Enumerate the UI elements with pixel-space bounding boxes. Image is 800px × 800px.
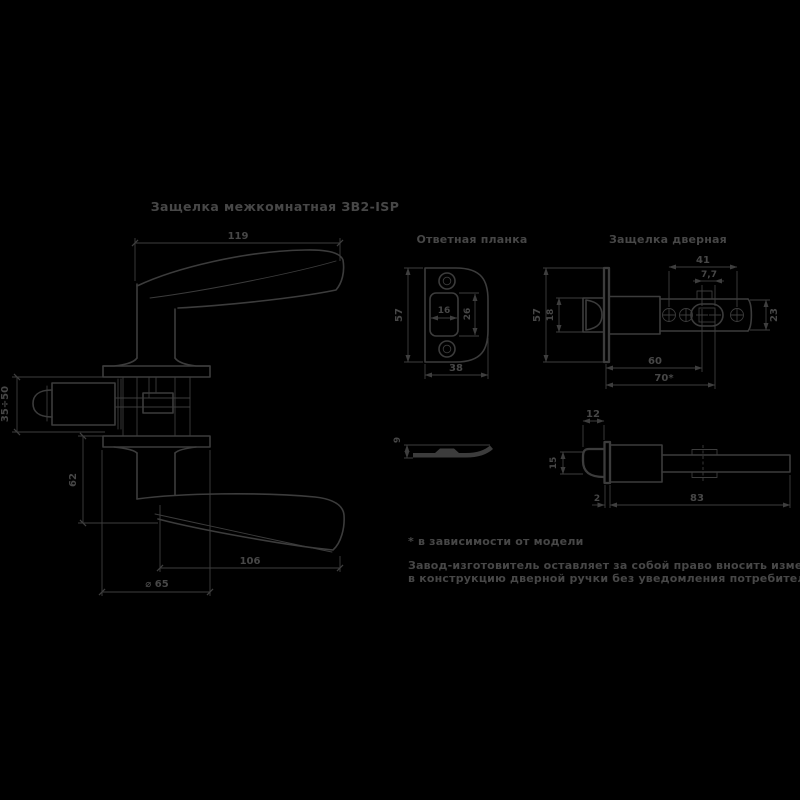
latch-front-view: 57 18 41 7,7 23: [532, 255, 780, 389]
dim-strike-38-label: 38: [449, 363, 463, 374]
dim-backset-60-label: 60: [648, 356, 662, 367]
strike-plate-side-view: 9: [393, 437, 493, 458]
dim-bolt-15-label: 15: [549, 457, 559, 470]
dim-strike-38: 38: [425, 338, 488, 379]
dim-length-83: 83: [610, 475, 790, 508]
dim-backset-label: 35÷50: [0, 386, 11, 422]
dim-backset-70-label: 70*: [654, 373, 674, 384]
footnote: * в зависимости от модели: [408, 535, 583, 548]
dim-throw-12-label: 12: [586, 409, 600, 420]
handle-side-view: 119 35÷50 62 106 ⌀ 65: [0, 231, 344, 596]
disclaimer-line2: в конструкцию дверной ручки без уведомле…: [408, 572, 800, 585]
dim-length-83-label: 83: [690, 493, 704, 504]
strike-plate-label: Ответная планка: [416, 233, 527, 246]
latch-label: Защелка дверная: [609, 233, 727, 246]
dim-106-label: 106: [240, 556, 261, 567]
dim-gap-77: 7,7: [693, 270, 724, 306]
dim-slot-26: 26: [459, 293, 479, 336]
dim-plate-2: 2: [592, 485, 610, 508]
dim-tube-23: 23: [750, 300, 780, 330]
dim-strike-57-label: 57: [394, 308, 405, 322]
dim-slot-26-label: 26: [463, 308, 473, 321]
dim-strike-57: 57: [394, 268, 423, 362]
dim-plate-2-label: 2: [594, 494, 600, 504]
dim-strike-9-label: 9: [393, 437, 403, 443]
strike-plate-front-view: 57 16 26 38: [394, 268, 488, 379]
dim-slot-16-label: 16: [438, 306, 451, 316]
dim-span-41-label: 41: [696, 255, 710, 266]
dim-latch-57-label: 57: [532, 308, 543, 322]
dim-diameter-label: ⌀ 65: [145, 579, 168, 590]
technical-drawing: Защелка межкомнатная ЗВ2-ISP Ответная пл…: [0, 0, 800, 800]
dim-62-label: 62: [68, 473, 79, 487]
dim-bolt-15: 15: [549, 452, 583, 474]
dim-62: 62: [68, 436, 158, 523]
dim-bolt-18: 18: [546, 298, 583, 332]
dim-throw-12: 12: [583, 409, 604, 447]
dim-gap-77-label: 7,7: [701, 270, 717, 280]
dim-119-label: 119: [228, 231, 249, 242]
latch-side-view: 12 15 2 83: [549, 409, 790, 508]
drawing-sheet: Защелка межкомнатная ЗВ2-ISP Ответная пл…: [0, 0, 800, 800]
dim-tube-23-label: 23: [769, 308, 780, 322]
dim-bolt-18-label: 18: [546, 309, 556, 322]
disclaimer-line1: Завод-изготовитель оставляет за собой пр…: [408, 559, 800, 572]
dim-latch-57: 57: [532, 268, 604, 362]
dim-slot-16: 16: [431, 306, 457, 318]
page-title: Защелка межкомнатная ЗВ2-ISP: [151, 199, 400, 214]
